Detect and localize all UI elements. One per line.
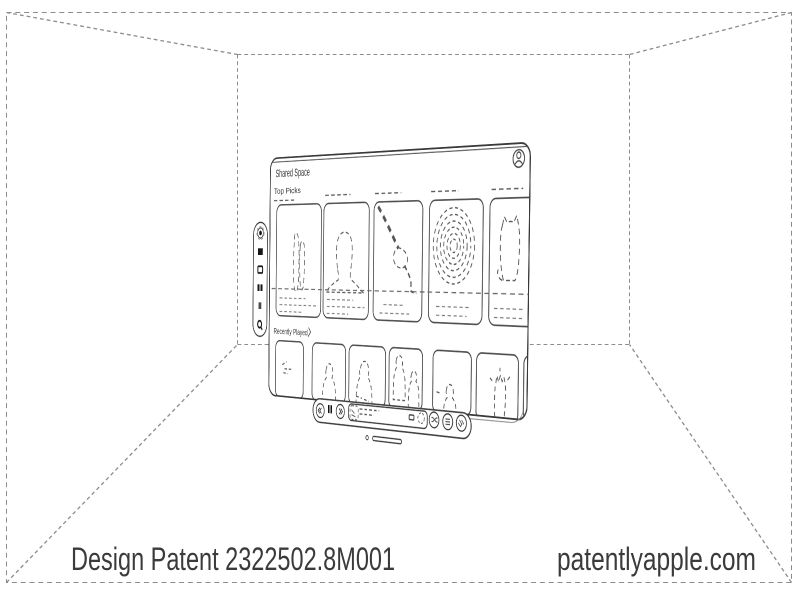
svg-text:Recently Played: Recently Played [274, 327, 308, 338]
svg-text:Shared Space: Shared Space [276, 165, 310, 180]
svg-text:Top Picks: Top Picks [274, 186, 301, 196]
